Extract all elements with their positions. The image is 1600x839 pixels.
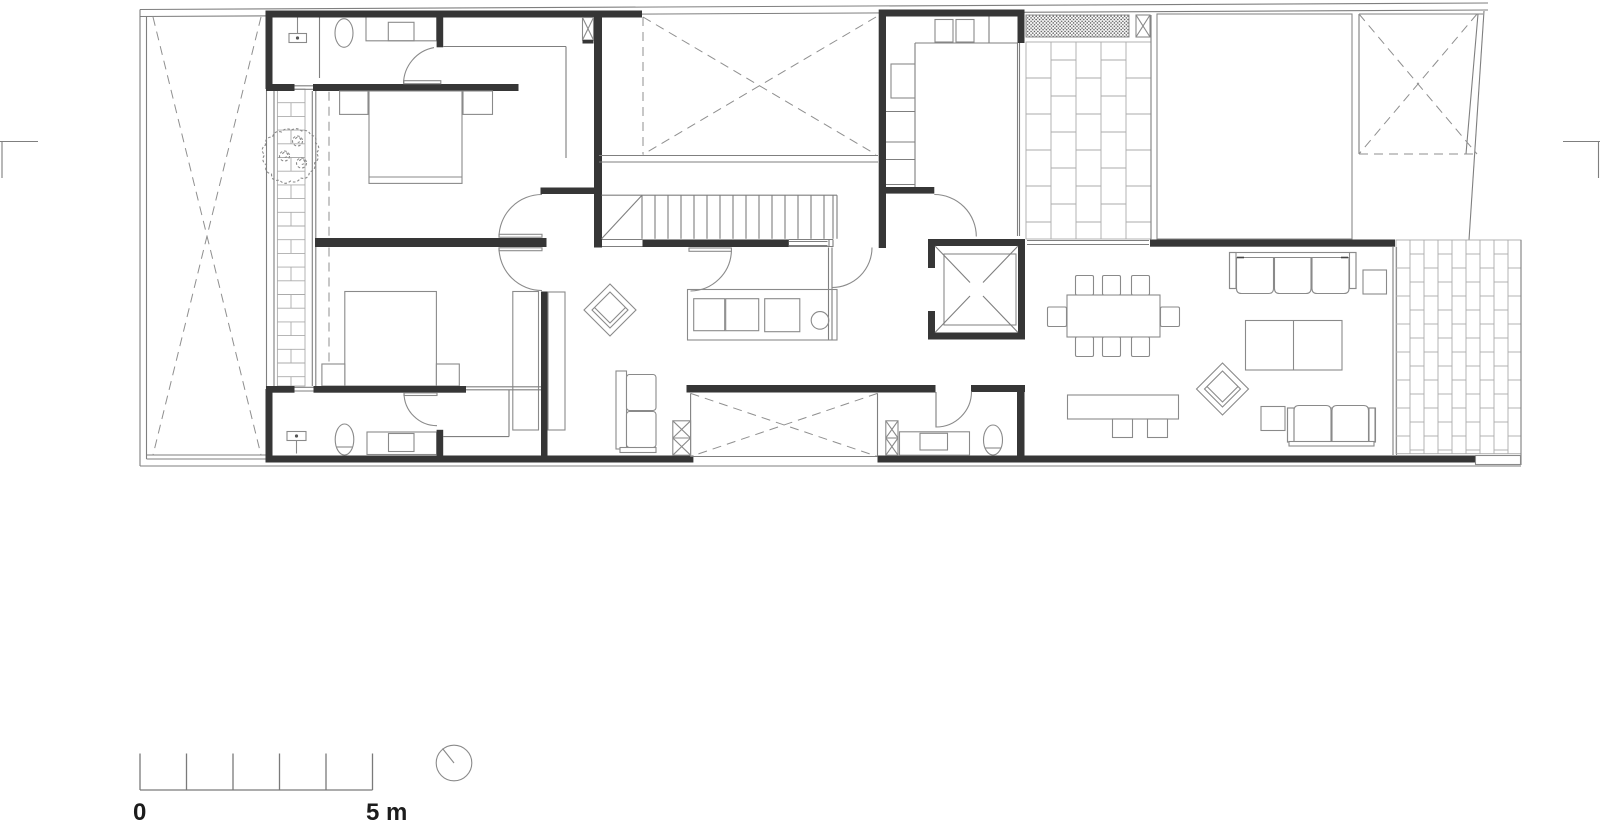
svg-text:5 m: 5 m xyxy=(366,799,407,826)
svg-text:0: 0 xyxy=(133,799,146,826)
